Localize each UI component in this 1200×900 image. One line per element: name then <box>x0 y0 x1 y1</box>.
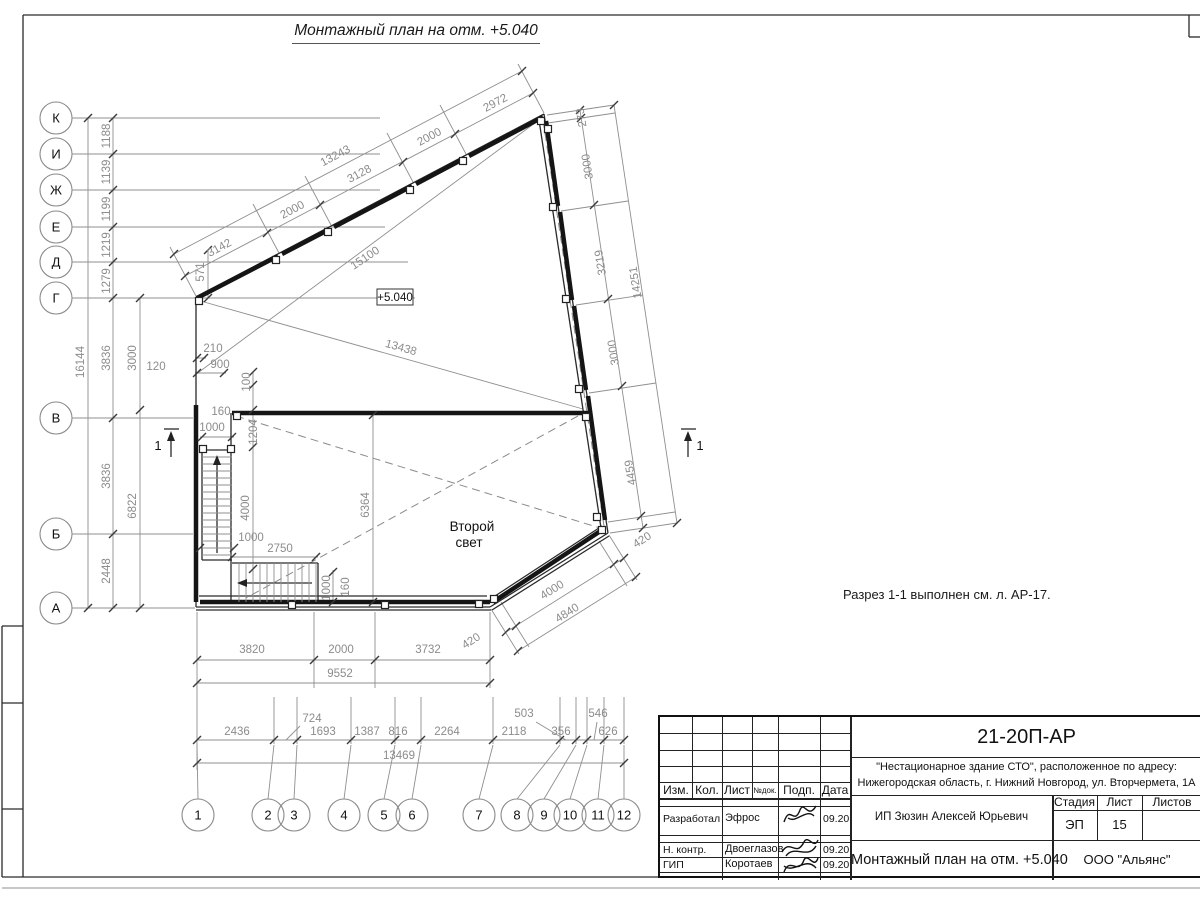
dim-text: 3000 <box>606 339 622 366</box>
dim-text: 3142 <box>205 237 233 260</box>
axis-label: Е <box>52 220 61 235</box>
dim-text: 13243 <box>319 144 353 170</box>
dim-text: 4000 <box>538 579 566 603</box>
tb-name-1: Двоеглазов <box>725 843 783 855</box>
tb-stage-value: ЭП <box>1052 810 1097 840</box>
tb-sheet-value: 15 <box>1097 810 1142 840</box>
dim-text: 2264 <box>434 726 460 738</box>
tb-date-1: 09.20 <box>823 844 849 856</box>
dim-line <box>544 745 576 799</box>
axis-label: Б <box>52 527 61 542</box>
column-marker <box>407 187 414 194</box>
tb-date-0: 09.20 <box>823 813 849 825</box>
tb-client: ИП Зюзин Алексей Юрьевич <box>851 795 1052 840</box>
dim-line <box>501 602 529 647</box>
axis-label: 1 <box>194 808 201 823</box>
axis-label: 7 <box>475 808 482 823</box>
column-marker <box>550 204 557 211</box>
dim-text: 6822 <box>127 493 139 519</box>
tb-project-line2: Нижегородская область, г. Нижний Новгоро… <box>851 777 1200 789</box>
dim-text: 16144 <box>75 345 87 378</box>
dim-text: 100 <box>241 372 253 391</box>
dim-text: 2436 <box>224 726 250 738</box>
dim-text: 273 <box>575 107 590 128</box>
dim-line <box>561 201 628 211</box>
tb-sheets-label: Листов <box>1142 795 1200 810</box>
dim-line <box>517 745 560 799</box>
dim-line <box>268 745 274 799</box>
tb-col-kol: Кол. <box>692 783 722 798</box>
tb-col-data: Дата <box>820 783 850 798</box>
wall <box>560 212 572 300</box>
tb-sheet-label: Лист <box>1097 795 1142 810</box>
tb-name-0: Эфрос <box>725 812 760 824</box>
dim-line <box>185 93 533 276</box>
axis-label: В <box>52 411 61 426</box>
dim-text: 3000 <box>127 345 139 371</box>
dim-text: 1188 <box>101 124 113 149</box>
column-marker <box>491 596 498 603</box>
dim-text: 4840 <box>553 602 581 626</box>
dim-line <box>344 745 351 799</box>
tb-role-1: Н. контр. <box>663 844 706 856</box>
dim-text: 1279 <box>101 268 113 294</box>
column-marker <box>289 602 296 609</box>
tb-project-line1: "Нестационарное здание СТО", расположенн… <box>851 761 1200 773</box>
dim-text: 4459 <box>623 459 639 486</box>
dim-line <box>387 133 413 182</box>
dim-tick <box>181 272 189 280</box>
dim-text: 210 <box>203 343 222 355</box>
drawing-sheet: { "sheet": { "title": "Монтажный план на… <box>0 0 1200 900</box>
dim-text: 1204 <box>248 419 260 445</box>
dim-text: 420 <box>460 631 483 651</box>
dim-tick <box>399 158 407 166</box>
tb-col-ndok: №док. <box>752 783 778 798</box>
column-marker <box>594 514 601 521</box>
column-marker <box>476 601 483 608</box>
dim-line <box>195 117 543 375</box>
arrowhead <box>684 431 692 441</box>
dim-line <box>286 726 300 740</box>
dim-text: 2448 <box>101 558 113 584</box>
dim-text: 120 <box>146 361 165 373</box>
dim-text: 816 <box>388 726 407 738</box>
axis-label: А <box>52 601 61 616</box>
dim-line <box>440 105 466 154</box>
column-marker <box>228 446 235 453</box>
dim-text: 420 <box>631 530 654 550</box>
dim-text: 1000 <box>199 422 225 434</box>
outline-line <box>492 536 609 610</box>
wall <box>334 186 412 227</box>
dim-text: 2118 <box>502 726 527 738</box>
dim-line <box>599 541 627 586</box>
tb-col-list: Лист <box>722 783 752 798</box>
dim-text: 2972 <box>481 92 509 115</box>
column-marker <box>538 118 545 125</box>
dim-line <box>294 745 297 799</box>
dim-text: 3836 <box>101 463 113 489</box>
dim-tick <box>518 67 526 75</box>
dim-text: 2000 <box>278 199 306 222</box>
dim-text: 2750 <box>267 543 293 555</box>
dim-text: 1139 <box>101 160 113 185</box>
tb-drawing-title: Монтажный план на отм. +5.040 <box>851 840 1052 880</box>
dim-line <box>197 745 198 799</box>
signature-scribbles <box>778 800 820 880</box>
dim-line <box>491 609 519 654</box>
dim-tick <box>512 622 520 630</box>
axis-label: 6 <box>408 808 415 823</box>
brace-dashed-line <box>543 120 604 526</box>
axis-label: Ж <box>50 183 62 198</box>
column-marker <box>583 414 590 421</box>
column-marker <box>545 126 552 133</box>
axis-label: Д <box>52 255 61 270</box>
dim-text: 2000 <box>415 126 443 149</box>
tb-role-0: Разработал <box>663 813 720 825</box>
dim-text: 1219 <box>101 232 113 258</box>
dim-line <box>305 176 331 225</box>
tb-date-2: 09.20 <box>823 859 849 871</box>
dim-text: 2000 <box>328 644 354 656</box>
dim-text: 6364 <box>360 492 372 518</box>
arrowhead <box>167 431 175 441</box>
wall <box>574 306 586 390</box>
title-block: Изм. Кол. Лист №док. Подп. Дата Разработ… <box>658 715 1200 878</box>
axis-label: 11 <box>591 808 605 823</box>
column-marker <box>196 298 203 305</box>
dim-text: 1199 <box>101 197 113 222</box>
dim-text: 1693 <box>310 726 336 738</box>
plan-label: свет <box>455 535 482 550</box>
column-marker <box>576 386 583 393</box>
dim-text: 1387 <box>354 726 380 738</box>
tb-doc-number: 21-20П-АР <box>851 717 1200 757</box>
tb-stage-label: Стадия <box>1052 795 1097 810</box>
dim-line <box>479 745 493 799</box>
dim-text: 503 <box>514 708 533 720</box>
dim-text: 1000 <box>238 532 264 544</box>
dim-text: 3836 <box>101 345 113 371</box>
dim-text: 3000 <box>580 153 596 180</box>
dim-tick <box>170 250 178 258</box>
column-marker <box>599 527 606 534</box>
brace-dashed-line <box>236 416 600 528</box>
dim-line <box>570 745 587 799</box>
axis-label: И <box>51 147 60 162</box>
arrowhead <box>237 579 247 587</box>
column-marker <box>234 413 241 420</box>
dim-text: 1000 <box>321 575 333 601</box>
dim-text: 160 <box>211 406 230 418</box>
dim-text: 3820 <box>239 644 265 656</box>
axis-label: 4 <box>340 808 347 823</box>
dim-text: 13438 <box>384 338 418 358</box>
axis-label: 5 <box>380 808 387 823</box>
tb-col-podp: Подп. <box>778 783 820 798</box>
wall <box>469 117 543 156</box>
tb-org: ООО "Альянс" <box>1052 840 1200 880</box>
arrowhead <box>213 455 221 465</box>
dim-text: 724 <box>302 713 322 725</box>
dim-tick <box>451 130 459 138</box>
dim-text: 4000 <box>240 495 252 521</box>
dim-text: 14251 <box>628 266 645 299</box>
column-marker <box>273 257 280 264</box>
brace-dashed-line <box>246 416 578 598</box>
plan-label: Второй <box>450 519 495 534</box>
dim-text: 160 <box>340 577 352 596</box>
section-note: Разрез 1-1 выполнен см. л. АР-17. <box>843 587 1051 602</box>
axis-label: К <box>52 111 60 126</box>
outline-line <box>539 120 601 528</box>
dim-tick <box>529 89 537 97</box>
dim-text: 900 <box>210 359 229 371</box>
dim-text: 356 <box>551 726 570 738</box>
column-marker <box>325 229 332 236</box>
wall <box>282 229 330 254</box>
dim-text: 3128 <box>345 163 373 186</box>
axis-label: 10 <box>563 808 577 823</box>
dim-line <box>598 745 604 799</box>
dim-line <box>594 722 597 740</box>
dim-line <box>614 105 677 523</box>
axis-label: 3 <box>290 808 297 823</box>
axis-label: 8 <box>513 808 520 823</box>
axis-label: 12 <box>617 808 631 823</box>
axis-label: Г <box>52 291 59 306</box>
dim-text: 3219 <box>593 249 609 276</box>
plan-label: 1 <box>154 438 161 453</box>
plan-label: 1 <box>696 438 703 453</box>
tb-role-2: ГИП <box>663 859 684 871</box>
dim-line <box>197 300 583 409</box>
sheet-title: Монтажный план на отм. +5.040 <box>292 22 540 44</box>
column-marker <box>382 602 389 609</box>
axis-label: 9 <box>540 808 547 823</box>
dim-text: 13469 <box>383 750 415 762</box>
column-marker <box>563 296 570 303</box>
dim-tick <box>316 201 324 209</box>
axis-label: 2 <box>264 808 271 823</box>
wall <box>546 121 558 206</box>
dim-text: 626 <box>598 726 617 738</box>
tb-col-izm: Изм. <box>660 783 692 798</box>
dim-text: 3732 <box>415 644 441 656</box>
dim-text: 9552 <box>327 668 353 680</box>
column-marker <box>460 158 467 165</box>
column-marker <box>200 446 207 453</box>
plan-label: +5.040 <box>377 292 413 304</box>
dim-text: 546 <box>588 708 607 720</box>
dim-text: 571 <box>195 262 207 281</box>
tb-name-2: Коротаев <box>725 858 773 870</box>
